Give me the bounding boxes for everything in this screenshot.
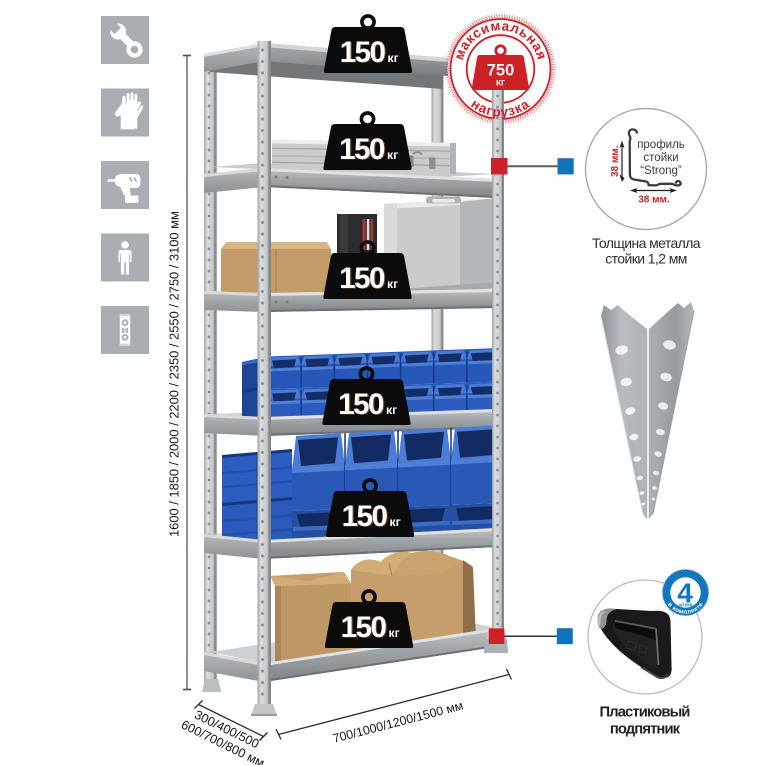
svg-text:150: 150	[338, 388, 384, 421]
svg-text:38 мм.: 38 мм.	[610, 145, 621, 177]
svg-text:кг: кг	[390, 515, 401, 529]
svg-text:профиль: профиль	[637, 139, 685, 151]
svg-text:штуки: штуки	[679, 602, 693, 607]
svg-text:150: 150	[340, 36, 386, 69]
svg-text:кг: кг	[388, 51, 399, 65]
svg-text:150: 150	[341, 611, 387, 644]
svg-text:Пластиковый: Пластиковый	[599, 705, 690, 721]
svg-text:кг: кг	[387, 148, 398, 162]
svg-text:кг: кг	[387, 277, 398, 291]
svg-text:стойки 1,2 мм: стойки 1,2 мм	[605, 251, 687, 267]
svg-text:кг: кг	[496, 78, 505, 89]
svg-text:1600 / 1850 / 2000 / 2200 / 23: 1600 / 1850 / 2000 / 2200 / 2350 / 2550 …	[167, 211, 182, 537]
svg-text:150: 150	[339, 262, 385, 295]
svg-text:150: 150	[339, 133, 385, 166]
svg-text:кг: кг	[389, 626, 400, 640]
svg-text:Толщина металла: Толщина металла	[592, 235, 701, 251]
svg-text:кг: кг	[386, 403, 397, 417]
svg-text:38 мм.: 38 мм.	[638, 195, 670, 206]
svg-text:150: 150	[342, 500, 388, 533]
svg-text:подпятник: подпятник	[610, 722, 681, 738]
svg-text:“Strong”: “Strong”	[640, 165, 682, 177]
svg-text:стойки: стойки	[643, 152, 678, 164]
